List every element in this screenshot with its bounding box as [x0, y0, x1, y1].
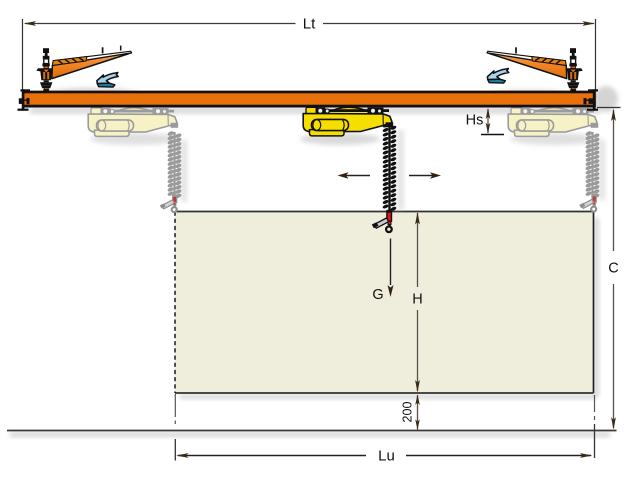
svg-text:H: H	[412, 292, 422, 308]
svg-text:Lu: Lu	[378, 448, 395, 465]
svg-text:C: C	[608, 261, 618, 277]
svg-text:G: G	[372, 287, 383, 303]
svg-text:Hs: Hs	[466, 113, 484, 129]
svg-text:200: 200	[401, 402, 415, 423]
svg-text:Lt: Lt	[303, 16, 316, 33]
